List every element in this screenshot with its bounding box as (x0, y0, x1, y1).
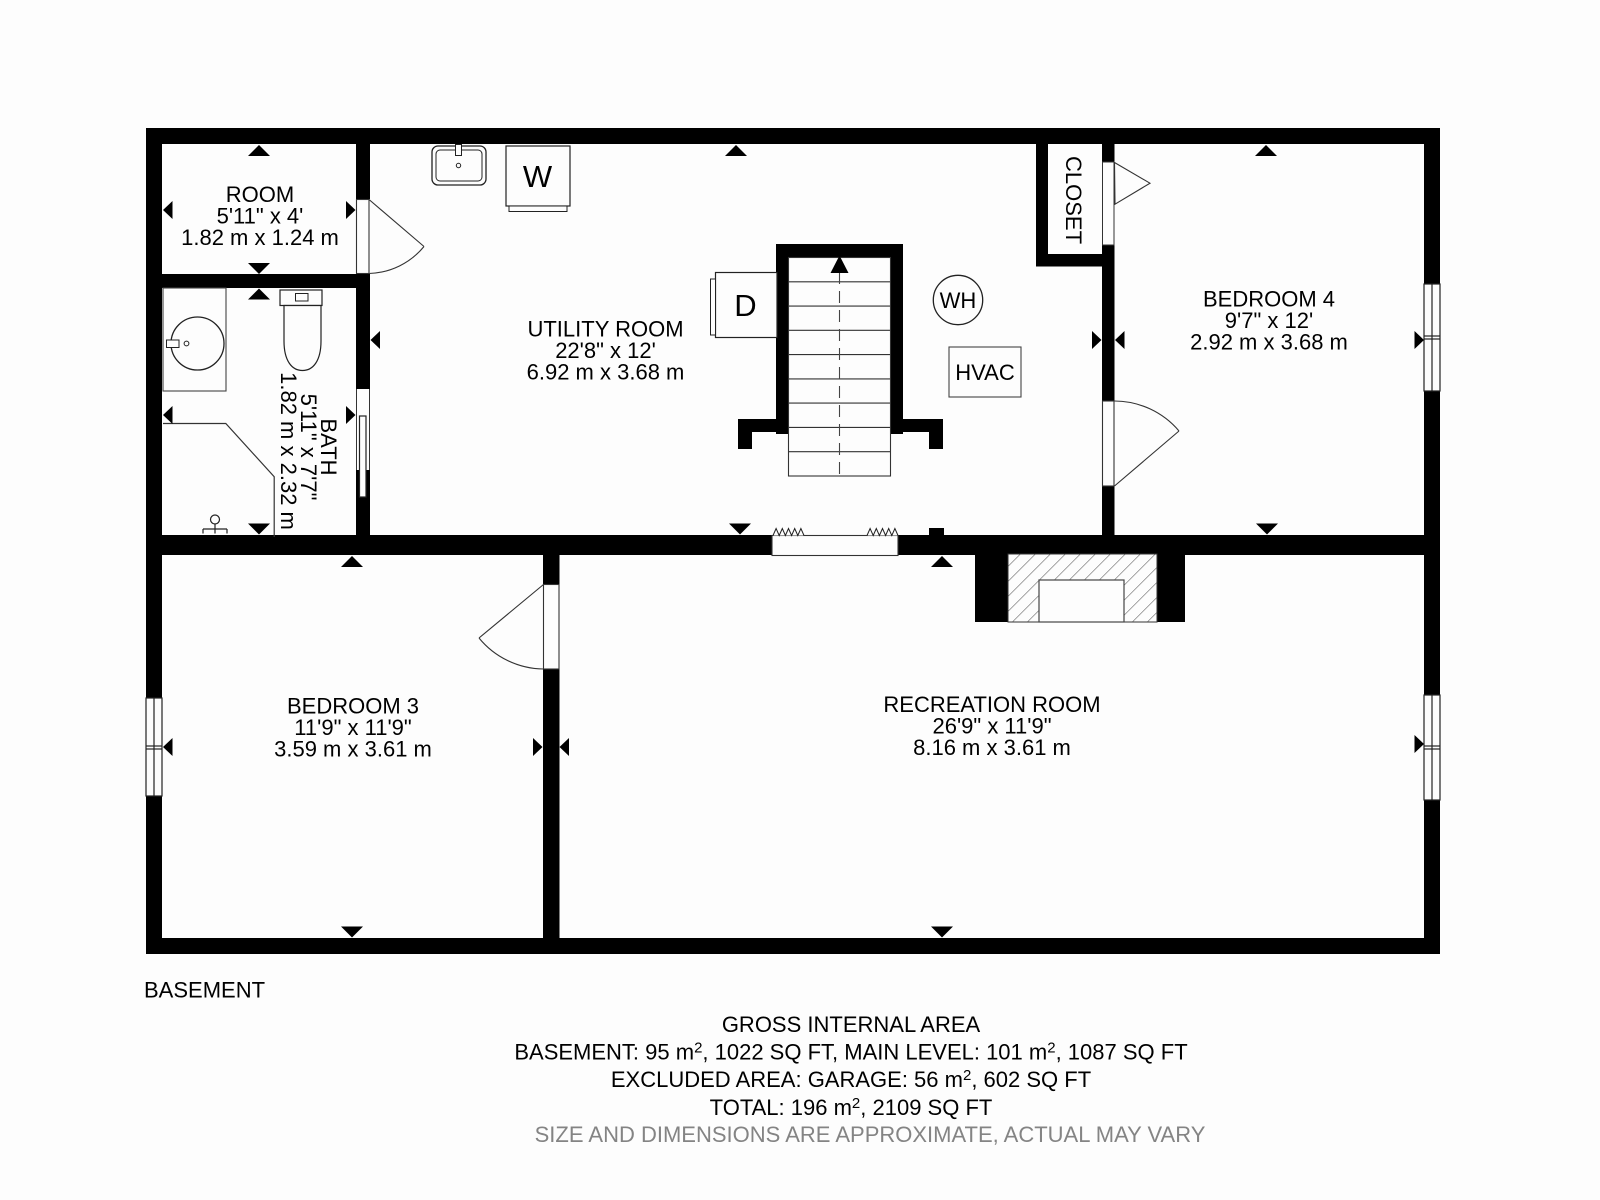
svg-text:W: W (523, 159, 553, 194)
svg-text:TOTAL: 196 m2, 2109 SQ FT: TOTAL: 196 m2, 2109 SQ FT (710, 1095, 993, 1120)
svg-text:1.82 m x 2.32 m: 1.82 m x 2.32 m (276, 372, 301, 530)
svg-text:BASEMENT: BASEMENT (144, 978, 265, 1003)
svg-text:2.92 m x 3.68 m: 2.92 m x 3.68 m (1190, 330, 1348, 355)
svg-text:3.59 m x 3.61 m: 3.59 m x 3.61 m (274, 737, 432, 762)
svg-text:HVAC: HVAC (955, 360, 1015, 385)
svg-text:WH: WH (940, 288, 977, 313)
svg-text:1.82 m x 1.24 m: 1.82 m x 1.24 m (181, 225, 339, 250)
svg-text:BASEMENT: 95 m2, 1022 SQ FT, M: BASEMENT: 95 m2, 1022 SQ FT, MAIN LEVEL:… (514, 1040, 1187, 1065)
svg-text:8.16 m x 3.61 m: 8.16 m x 3.61 m (913, 735, 1071, 760)
svg-text:6.92 m x 3.68 m: 6.92 m x 3.68 m (527, 360, 685, 385)
svg-text:CLOSET: CLOSET (1061, 156, 1086, 244)
svg-text:D: D (734, 288, 756, 323)
svg-text:GROSS INTERNAL AREA: GROSS INTERNAL AREA (722, 1012, 981, 1037)
svg-text:EXCLUDED AREA: GARAGE: 56 m2,: EXCLUDED AREA: GARAGE: 56 m2, 602 SQ FT (611, 1067, 1091, 1092)
svg-text:SIZE AND DIMENSIONS ARE APPROX: SIZE AND DIMENSIONS ARE APPROXIMATE, ACT… (535, 1122, 1206, 1147)
